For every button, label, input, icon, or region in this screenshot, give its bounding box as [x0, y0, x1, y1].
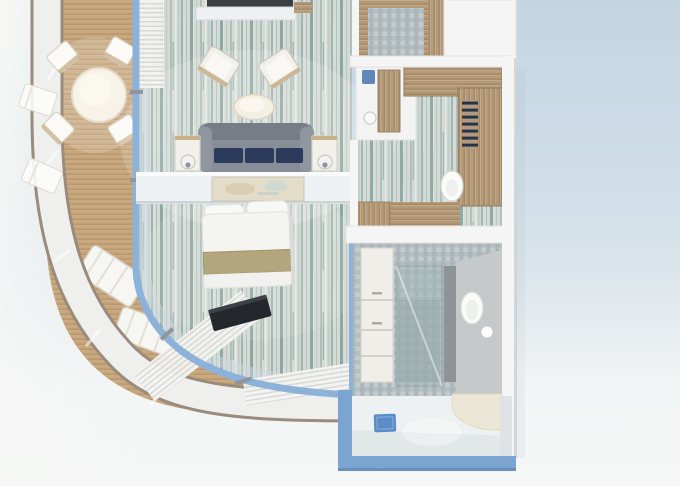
curtain — [139, 0, 164, 88]
closet-wood-side — [428, 0, 444, 56]
wall — [444, 0, 516, 58]
low-cabinet — [356, 202, 390, 228]
navy-cushion — [276, 148, 303, 163]
floorplan-svg — [0, 0, 680, 486]
oval-table-top — [239, 98, 265, 112]
bed — [202, 200, 296, 288]
stool — [364, 112, 376, 124]
console-desk — [136, 172, 352, 204]
navy-shelves — [462, 100, 478, 149]
table-highlight — [79, 74, 111, 106]
dressing-room — [356, 62, 502, 232]
vanity-desk — [378, 70, 400, 132]
entrance-hall — [338, 390, 516, 471]
side-table — [175, 136, 200, 171]
side-table — [312, 136, 337, 171]
wall — [350, 56, 512, 67]
lamp-detail — [185, 162, 190, 167]
mullion — [130, 90, 143, 94]
upper-module — [352, 0, 516, 58]
ambient-shadow — [516, 70, 525, 458]
navy-cushion — [214, 148, 243, 163]
toilet-detail — [482, 327, 493, 338]
map-art — [212, 177, 304, 201]
floor-reflection — [402, 418, 462, 446]
entry-right-wall-face — [500, 396, 512, 458]
wall-shelf — [196, 7, 296, 20]
entry-blue-wall-edge — [338, 468, 516, 471]
gold-runner — [203, 249, 291, 274]
blue-door-mat — [374, 414, 397, 433]
floorplan-render — [0, 0, 680, 486]
glass-shower — [396, 266, 442, 386]
mosaic-tiles — [368, 8, 424, 56]
bath-floor — [456, 250, 502, 394]
toilet — [441, 171, 463, 201]
bathroom — [349, 242, 512, 398]
shelf-wood-trim — [294, 2, 312, 13]
lamp-detail — [322, 162, 327, 167]
wall — [352, 0, 359, 58]
navy-cushion — [245, 148, 274, 163]
partition-wall — [444, 266, 456, 382]
blue-corner-trim — [349, 242, 353, 396]
sofa — [198, 123, 314, 173]
wall — [350, 140, 358, 232]
wall — [346, 226, 516, 243]
vanity-drawers — [361, 248, 393, 382]
desk-chair-blue — [362, 70, 375, 84]
